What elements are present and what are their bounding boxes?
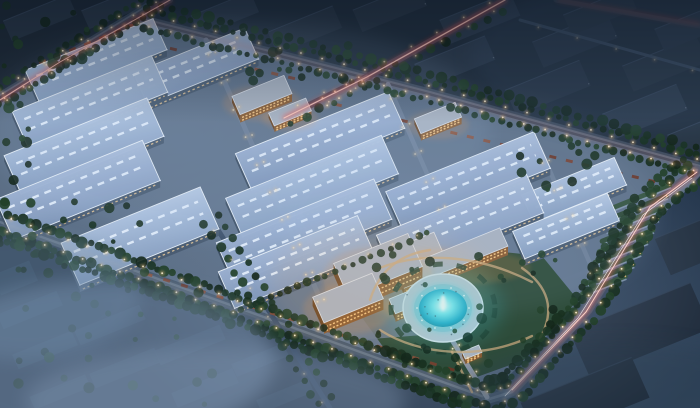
scene-root xyxy=(0,0,700,408)
aerial-render-canvas xyxy=(0,0,700,408)
vignette xyxy=(0,0,700,408)
industrial-park-aerial-rendering xyxy=(0,0,700,408)
